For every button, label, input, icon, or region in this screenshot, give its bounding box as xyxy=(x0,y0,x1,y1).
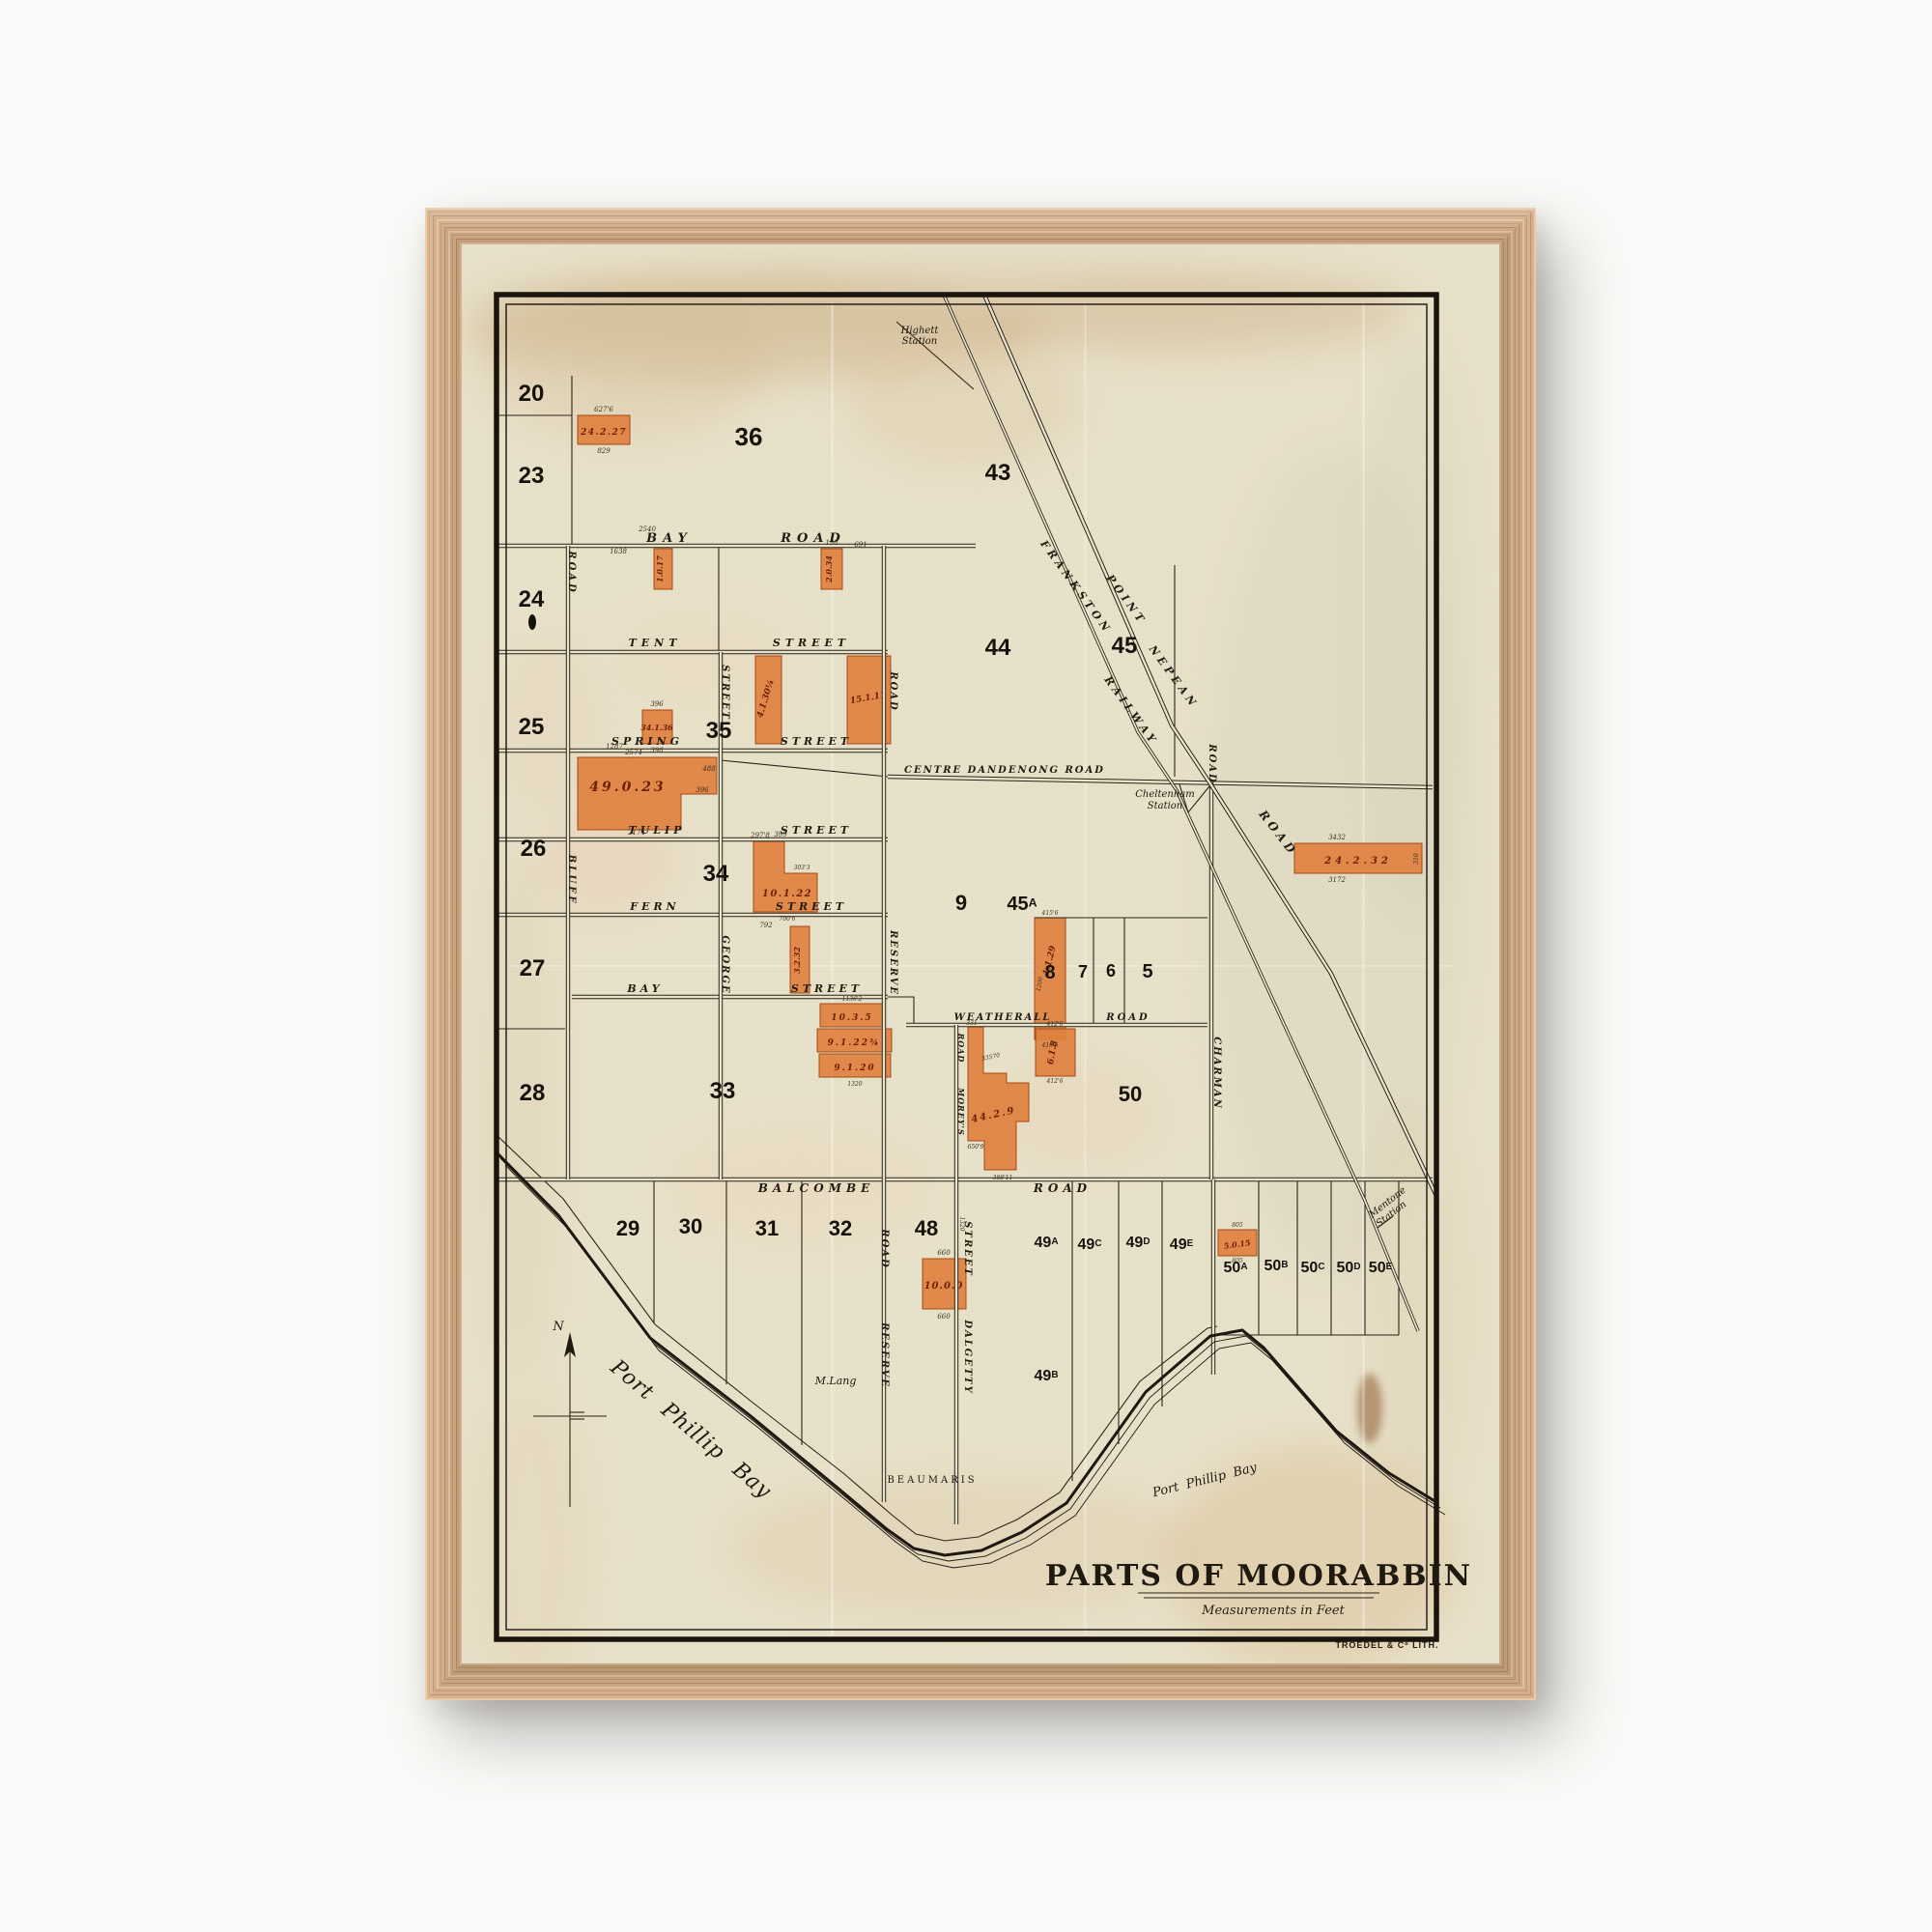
map-label-fern: FERN xyxy=(629,900,679,913)
map-label-700-6: 700'6 xyxy=(780,916,796,923)
map-label-charman: CHARMAN xyxy=(1211,1037,1222,1109)
map-label-30: 30 xyxy=(679,1214,702,1238)
map-label-station: Station xyxy=(902,336,938,347)
map-label-396: 396 xyxy=(696,786,709,794)
map-label-street: STREET xyxy=(781,735,852,748)
map-label-792: 792 xyxy=(759,922,773,929)
paper-texture xyxy=(462,244,1499,1663)
map-label-1320: 1320 xyxy=(958,1216,965,1231)
map-label-805: 805 xyxy=(1232,1222,1243,1229)
map-label-5: 5 xyxy=(1142,961,1152,982)
map-label-398: 398 xyxy=(650,747,664,754)
parcel-label-34-1-36: 34.1.36 xyxy=(640,723,673,732)
map-label-1320: 1320 xyxy=(847,1081,862,1088)
map-label-20: 20 xyxy=(519,381,545,407)
poster-frame: 24.2.271.0.172.0.3434.1.364.1.30¼15.1.11… xyxy=(425,208,1536,1700)
map-label-415-6: 415'6 xyxy=(1041,910,1059,917)
moorabbin-map: 24.2.271.0.172.0.3434.1.364.1.30¼15.1.11… xyxy=(462,244,1499,1663)
map-label-reserve: RESERVE xyxy=(879,1321,890,1388)
map-label-50: 50 xyxy=(1119,1082,1142,1106)
map-label-street: STREET xyxy=(776,900,847,913)
map-label-32: 32 xyxy=(829,1216,852,1240)
map-label-1638: 1638 xyxy=(610,548,627,555)
map-label-2540: 2540 xyxy=(638,526,656,533)
map-label-28: 28 xyxy=(520,1080,546,1106)
map-label-660: 660 xyxy=(937,1249,951,1257)
map-label-36: 36 xyxy=(735,422,763,451)
map-label-198: 198 xyxy=(825,539,838,547)
map-label-street: STREET xyxy=(773,637,850,649)
map-label-23: 23 xyxy=(519,463,545,489)
map-label-829: 829 xyxy=(597,447,611,455)
map-label-660: 660 xyxy=(937,1313,951,1321)
map-label-bluff: BLUFF xyxy=(566,854,577,906)
map-label-road: ROAD xyxy=(879,1228,890,1268)
map-label-road: ROAD xyxy=(1033,1181,1092,1195)
map-label-31: 31 xyxy=(755,1216,779,1240)
parcel-label-49-0-23: 49.0.23 xyxy=(589,780,666,795)
map-label-3432: 3432 xyxy=(1328,834,1346,841)
map-label-1136-2: 1136'2 xyxy=(842,996,863,1003)
map-label-24: 24 xyxy=(519,586,545,612)
map-label-27: 27 xyxy=(520,955,546,981)
parcel-label-9-1-20: 9.1.20 xyxy=(834,1064,875,1073)
map-label-7: 7 xyxy=(1078,962,1088,981)
map-label-416-6: 416'6 xyxy=(1041,1042,1059,1049)
map-label-8: 8 xyxy=(1044,962,1055,983)
map-label-highett: Highett xyxy=(900,326,940,336)
map-label-road: ROAD xyxy=(888,670,898,711)
map-label-303-3: 303'3 xyxy=(794,865,810,871)
map-label-48: 48 xyxy=(915,1216,938,1240)
map-label-3172: 3172 xyxy=(1328,876,1346,884)
map-label-412-6: 412'6 xyxy=(1046,1021,1064,1028)
parcel-label-1-0-17: 1.0.17 xyxy=(655,555,665,582)
map-label-310: 310 xyxy=(1413,853,1420,865)
map-label-dalgetty: DALGETTY xyxy=(962,1319,973,1394)
map-label-street: STREET xyxy=(781,824,852,837)
map-label-bay: BAY xyxy=(626,982,663,995)
map-label-44: 44 xyxy=(985,635,1011,661)
map-label-1287: 1287 xyxy=(606,743,623,751)
map-title: PARTS OF MOORABBIN xyxy=(1045,1559,1472,1593)
map-label-9: 9 xyxy=(955,891,967,915)
parcel-label-10-1-22: 10.1.22 xyxy=(762,889,812,899)
map-paper: 24.2.271.0.172.0.3434.1.364.1.30¼15.1.11… xyxy=(462,244,1499,1663)
map-label-805: 805 xyxy=(1232,1258,1243,1264)
map-label-25: 25 xyxy=(519,714,545,740)
map-subtitle: Measurements in Feet xyxy=(1201,1604,1345,1618)
map-label-centre-dandenong-road: CENTRE DANDENONG ROAD xyxy=(904,765,1105,776)
map-label-cheltenham: Cheltenham xyxy=(1135,789,1194,800)
map-label-george: GEORGE xyxy=(720,935,730,994)
map-label-m-lang: M.Lang xyxy=(814,1375,857,1387)
frame-bottom xyxy=(425,1663,1536,1700)
map-label-650-9: 650'9 xyxy=(968,1144,984,1151)
map-label-488: 488 xyxy=(701,765,716,773)
parcel-label-24-2-27: 24.2.27 xyxy=(580,428,627,438)
map-label-2174: 2174 xyxy=(627,829,645,837)
map-label-street: STREET xyxy=(720,665,730,721)
map-label-45: 45 xyxy=(1112,633,1138,659)
map-label-388-11: 388'11 xyxy=(993,1175,1013,1181)
lithographer-imprint: TROEDEL & Cº LITH. xyxy=(1335,1640,1438,1650)
frame-top xyxy=(425,208,1536,244)
map-label-6: 6 xyxy=(1106,961,1116,980)
frame-right xyxy=(1499,208,1536,1700)
parcel-label-10-3-5: 10.3.5 xyxy=(831,1013,872,1023)
map-label-road: ROAD xyxy=(1207,743,1217,783)
map-label-tent: TENT xyxy=(629,637,682,649)
map-label-691: 691 xyxy=(854,541,867,549)
map-label-297-8: 297'8 xyxy=(750,832,770,839)
map-label-35: 35 xyxy=(706,718,732,744)
parcel-label-2-0-34: 2.0.34 xyxy=(824,555,834,583)
map-label-412-6: 412'6 xyxy=(1046,1078,1064,1085)
map-label-bay: BAY xyxy=(645,531,693,546)
map-label-34: 34 xyxy=(703,861,729,887)
map-label-627-6: 627'6 xyxy=(594,406,613,413)
map-label-balcombe: BALCOMBE xyxy=(757,1181,874,1195)
map-label-29: 29 xyxy=(616,1216,639,1240)
parcel-label-24-2-32: 24.2.32 xyxy=(1323,856,1392,867)
map-label-morey-s: MOREY'S xyxy=(956,1087,966,1136)
map-label-331: 331 xyxy=(966,1020,977,1027)
map-label-beaumaris: BEAUMARIS xyxy=(887,1475,977,1486)
map-label-396: 396 xyxy=(650,700,664,708)
parcel-label-9-1-22: 9.1.22¾ xyxy=(828,1038,881,1048)
map-label-26: 26 xyxy=(521,836,547,862)
map-label-road: ROAD xyxy=(566,550,577,594)
map-label-reserve: RESERVE xyxy=(888,929,898,996)
ink-blot xyxy=(528,614,536,630)
map-label-43: 43 xyxy=(985,460,1011,486)
frame-left xyxy=(425,208,462,1700)
page-background: 24.2.271.0.172.0.3434.1.364.1.30¼15.1.11… xyxy=(0,0,1932,1932)
map-label-street: STREET xyxy=(791,982,863,995)
map-label-399: 399 xyxy=(774,831,787,838)
map-label-station: Station xyxy=(1148,801,1183,811)
map-label-33: 33 xyxy=(710,1078,736,1104)
map-label-n: N xyxy=(552,1320,564,1334)
parcel-label-3-2-32: 3.2.32 xyxy=(792,947,802,974)
map-label-road: ROAD xyxy=(1105,1012,1150,1023)
map-label-2574: 2574 xyxy=(624,749,642,756)
map-label-road: ROAD xyxy=(956,1033,966,1064)
